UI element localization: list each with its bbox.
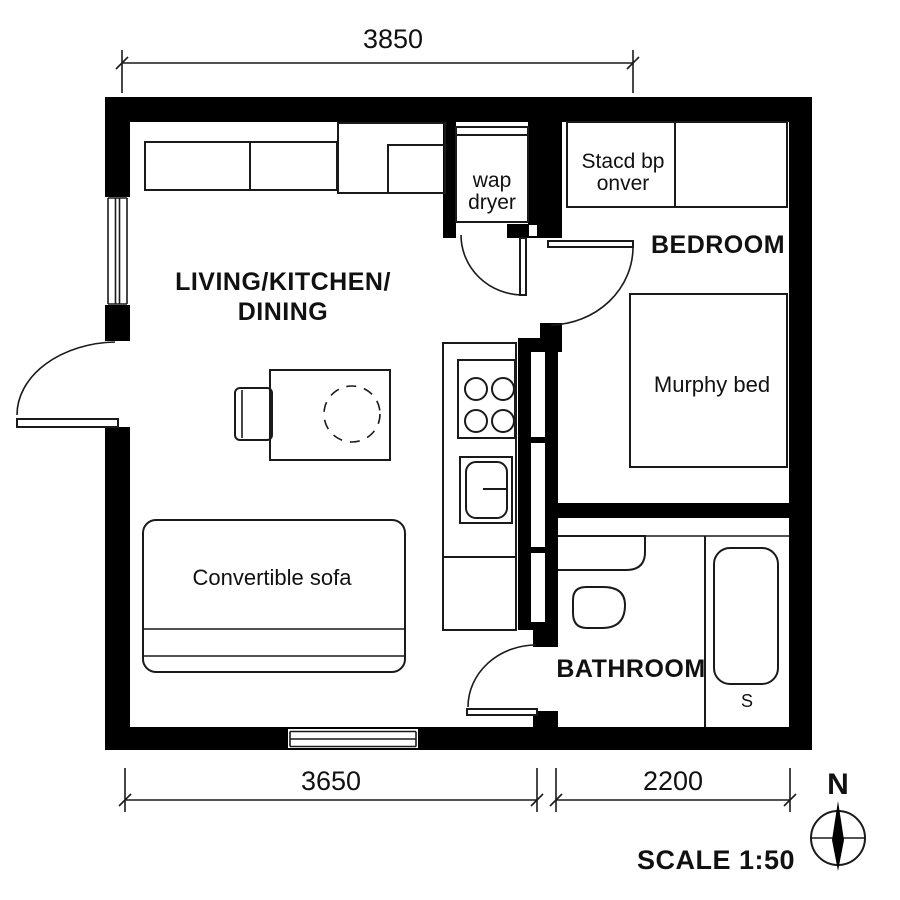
- vanity-counter: [558, 536, 645, 570]
- tall-unit: [338, 123, 445, 193]
- chair: [235, 388, 272, 440]
- north-compass-icon: [811, 801, 865, 871]
- wall-divider-top: [528, 122, 562, 238]
- closet-door-arc: [461, 235, 523, 295]
- opening-entry-door: [103, 341, 132, 427]
- label-washer-line1: wap: [472, 169, 512, 192]
- bathroom-door-leaf: [467, 709, 537, 715]
- wall-right: [789, 97, 812, 750]
- bathroom-door-arc: [468, 645, 536, 707]
- table-dashed-circle: [324, 386, 380, 442]
- sofa-outline: [143, 520, 405, 672]
- wall-bottom: [105, 727, 812, 750]
- room-label-bathroom: BATHROOM: [556, 655, 705, 683]
- bathroom-fixtures: [558, 536, 789, 727]
- wall-top: [105, 97, 812, 122]
- closet-door: [461, 235, 526, 295]
- wall-bath-stub-upper: [533, 628, 558, 647]
- shaft-niche-2: [531, 443, 545, 547]
- room-label-living-line2: DINING: [238, 298, 329, 326]
- sink-icon: [460, 457, 512, 523]
- bedroom-door-arc: [551, 247, 633, 325]
- stove-icon: [458, 360, 515, 438]
- bathtub-icon: [714, 548, 778, 684]
- toilet-icon: [573, 587, 625, 628]
- label-murphy-bed: Murphy bed: [654, 372, 770, 397]
- entry-door-arc: [17, 342, 115, 415]
- floor-plan-page: 3850 3650 2200 LIVING/KITCHEN/ DINING BE…: [0, 0, 900, 900]
- dim-label-bottom-right: 2200: [643, 766, 703, 796]
- closet-door-leaf: [520, 238, 526, 295]
- label-washer-line2: dryer: [468, 191, 516, 214]
- bathroom-door: [467, 645, 537, 715]
- scale-label: SCALE 1:50: [637, 845, 795, 875]
- north-label: N: [827, 768, 849, 801]
- dining-table: [235, 370, 390, 460]
- label-shower-mark: S: [741, 691, 753, 711]
- dim-label-top: 3850: [363, 24, 423, 54]
- bedroom-door-leaf: [548, 241, 633, 247]
- sofa: [143, 520, 405, 672]
- entry-door-leaf: [17, 419, 118, 427]
- bedroom-door: [548, 241, 633, 325]
- shaft-niche-1: [531, 352, 545, 437]
- room-label-living-line1: LIVING/KITCHEN/: [175, 268, 391, 296]
- tall-unit-inner: [388, 145, 445, 193]
- label-sofa: Convertible sofa: [193, 565, 353, 590]
- wall-bedroom-bathroom: [558, 503, 789, 518]
- entry-door: [17, 342, 118, 427]
- table-top: [270, 370, 390, 460]
- shaft-niche-3: [531, 553, 545, 622]
- dim-top: [116, 50, 639, 93]
- dim-label-bottom-left: 3650: [301, 766, 361, 796]
- label-closet-line2: onver: [597, 172, 650, 195]
- label-closet-line1: Stacd bp: [582, 150, 665, 173]
- kitchen-counter: [443, 343, 516, 630]
- closet-wall-notch: [529, 225, 537, 236]
- upper-cabinets: [145, 142, 337, 190]
- room-label-bedroom: BEDROOM: [651, 231, 785, 259]
- floor-plan-drawing: 3850 3650 2200 LIVING/KITCHEN/ DINING BE…: [0, 0, 900, 900]
